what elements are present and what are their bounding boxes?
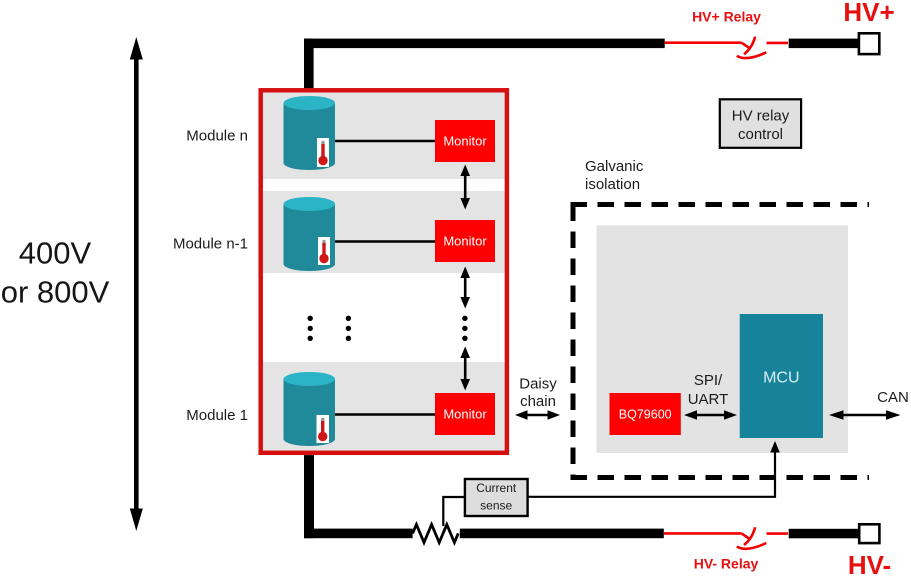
svg-text:Monitor: Monitor (443, 407, 487, 422)
svg-text:BQ79600: BQ79600 (619, 408, 672, 422)
svg-text:control: control (738, 126, 783, 143)
svg-text:HV+: HV+ (843, 0, 894, 27)
svg-text:sense: sense (480, 498, 512, 512)
svg-text:HV-: HV- (848, 550, 891, 576)
svg-text:Monitor: Monitor (443, 234, 487, 249)
svg-text:or 800V: or 800V (1, 275, 110, 310)
svg-text:Module n: Module n (186, 128, 248, 145)
svg-text:HV+ Relay: HV+ Relay (692, 9, 761, 25)
svg-text:isolation: isolation (585, 176, 640, 193)
svg-text:Current: Current (476, 481, 517, 495)
svg-text:chain: chain (520, 393, 556, 410)
svg-text:400V: 400V (19, 236, 92, 271)
svg-text:Module n-1: Module n-1 (173, 236, 248, 253)
svg-text:MCU: MCU (763, 370, 799, 387)
svg-text:Monitor: Monitor (443, 134, 487, 149)
svg-text:CAN: CAN (877, 389, 909, 406)
svg-text:SPI/: SPI/ (694, 372, 723, 389)
svg-text:UART: UART (688, 391, 729, 408)
svg-text:Module 1: Module 1 (186, 407, 248, 424)
svg-text:Daisy: Daisy (519, 376, 557, 393)
svg-text:HV- Relay: HV- Relay (694, 556, 759, 572)
svg-text:Galvanic: Galvanic (585, 158, 644, 175)
svg-text:HV relay: HV relay (732, 108, 790, 125)
